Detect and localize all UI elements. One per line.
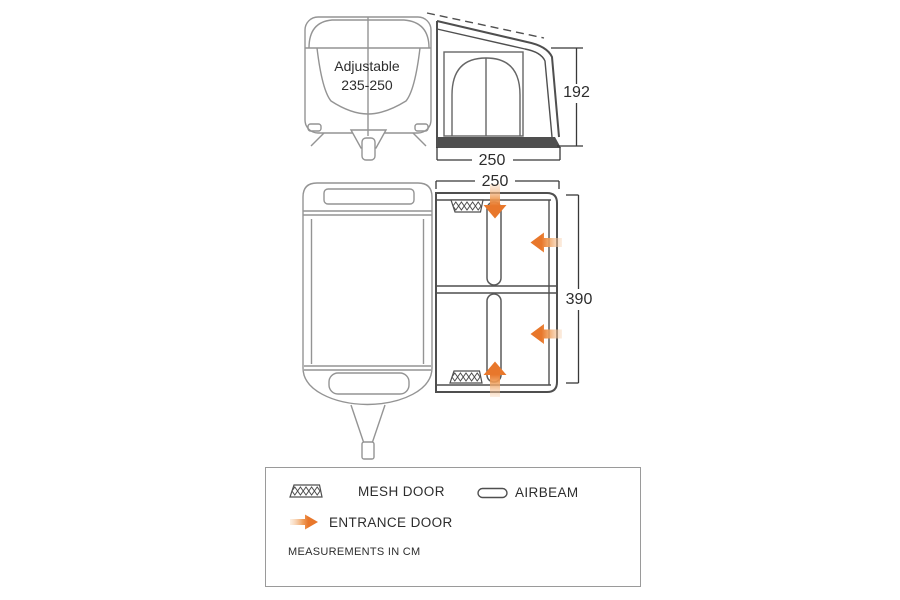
mesh-door-symbol-bottom: [450, 371, 482, 383]
corner-steady-left: [311, 133, 324, 146]
adjustable-label-line1: Adjustable: [334, 58, 400, 74]
airbeam-label: AIRBEAM: [515, 485, 579, 500]
caravan-front-locker: [329, 373, 409, 394]
adjustable-label-line2: 235-250: [341, 77, 393, 93]
drawbar-coupling: [362, 442, 374, 459]
awning-side-width-value: 250: [479, 152, 506, 169]
legend-box: MESH DOOR AIRBEAM ENTRANCE DOOR MEASUREM…: [265, 467, 641, 587]
plan-depth-dimension: 390: [566, 195, 593, 383]
mesh-door-label: MESH DOOR: [358, 484, 445, 499]
entrance-door-icon: [289, 513, 321, 531]
entrance-door-label: ENTRANCE DOOR: [329, 515, 453, 530]
measurements-note: MEASUREMENTS IN CM: [288, 546, 421, 558]
legend-mesh-door: MESH DOOR: [288, 483, 445, 499]
airbeam-icon: [476, 486, 510, 500]
awning-side-width-dimension: 250: [437, 147, 560, 169]
drawbar-right: [373, 405, 386, 442]
awning-roof-dashed-line: [427, 13, 544, 38]
page: Adjustable 235-250 192: [0, 0, 900, 600]
legend-airbeam: AIRBEAM: [476, 485, 579, 500]
drawbar-left: [351, 405, 364, 442]
legend-entrance-door: ENTRANCE DOOR: [289, 513, 453, 531]
awning-height-dimension: 192: [551, 48, 590, 146]
caravan-front-view: Adjustable 235-250: [305, 17, 431, 160]
mesh-door-icon: [288, 483, 324, 499]
awning-plan-view: [436, 184, 562, 397]
awning-door-frame: [444, 52, 523, 136]
caravan-roof-window: [324, 189, 414, 204]
plan-width-dimension: 250: [436, 173, 559, 190]
mesh-door-symbol-top: [451, 200, 483, 212]
plan-width-value: 250: [482, 173, 509, 190]
plan-depth-value: 390: [566, 291, 593, 308]
awning-groundsheet-base: [436, 137, 561, 148]
corner-steady-right: [413, 133, 426, 146]
legend-measurements-note: MEASUREMENTS IN CM: [288, 546, 421, 558]
caravan-top-view: [303, 183, 432, 459]
awning-side-view: [427, 13, 561, 148]
awning-height-value: 192: [563, 84, 590, 101]
